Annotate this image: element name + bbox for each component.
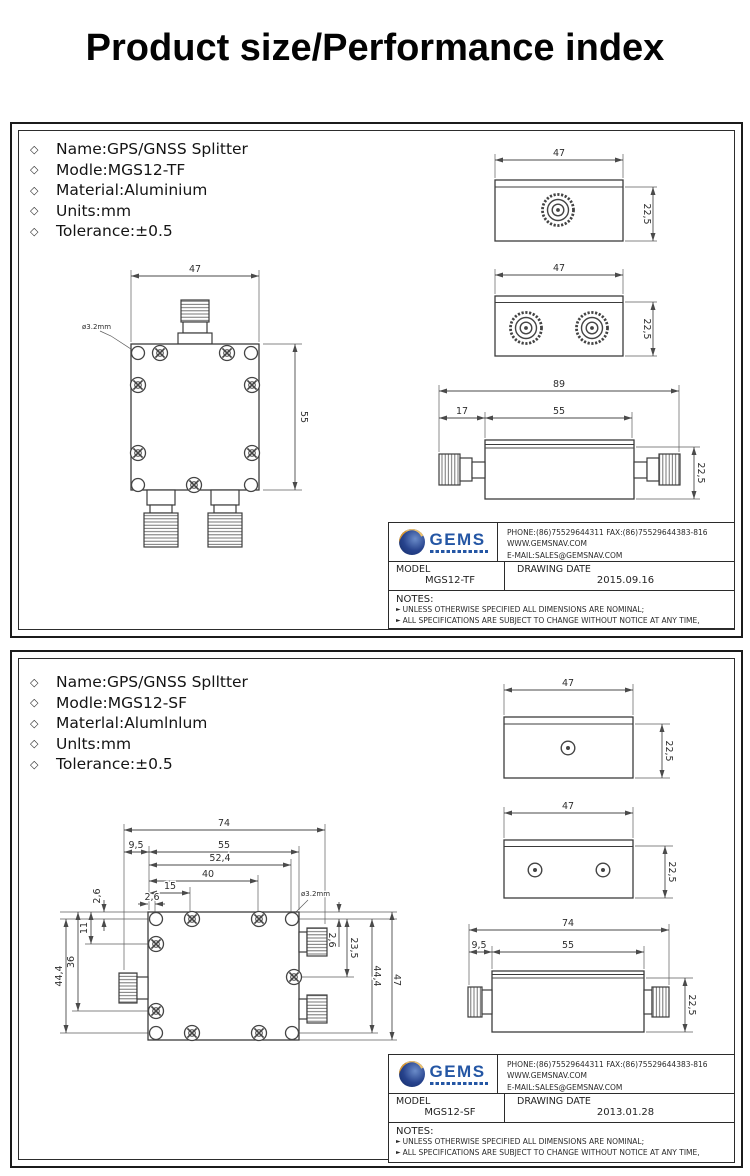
housing-outline — [492, 971, 644, 1032]
website: WWW.GEMSNAV.COM — [507, 538, 734, 549]
front-view: 74 9,5 55 52,4 40 15 2,6 — [54, 818, 402, 1041]
dim-label: 23,5 — [348, 937, 359, 958]
dim-label: 47 — [553, 263, 565, 274]
note-item: ►UNLESS OTHERWISE SPECIFIED ALL DIMENSIO… — [396, 605, 734, 616]
dim-label: 47 — [391, 974, 402, 986]
company-logo: GEMS — [389, 523, 498, 561]
dim-label: 22,5 — [663, 740, 674, 761]
title-block: GEMS PHONE:(86)75529644311 FAX:(86)75529… — [388, 1054, 735, 1163]
email: E-MAIL:SALES@GEMSNAV.COM — [507, 550, 734, 561]
side-view: 89 17 55 22,5 — [439, 379, 706, 499]
dim-label: 9,5 — [128, 840, 143, 851]
sma-connector-right-top — [299, 928, 327, 956]
sma-connector-face — [528, 863, 542, 877]
globe-icon — [399, 1061, 425, 1087]
n-connector-face — [543, 195, 574, 226]
notes-label: NOTES: — [396, 1126, 734, 1137]
housing-outline — [485, 440, 634, 499]
arrow-bullet-icon: ► — [396, 1138, 401, 1146]
dim-label: 17 — [456, 406, 468, 417]
sma-connector-left — [119, 973, 148, 1003]
dim-label: 15 — [164, 881, 176, 892]
dim-label: 22,5 — [641, 318, 652, 339]
dim-label: 47 — [562, 801, 574, 812]
note-item: ►ALL SPECIFICATIONS ARE SUBJECT TO CHANG… — [396, 616, 734, 627]
housing-outline — [131, 344, 259, 490]
title-block: GEMS PHONE:(86)75529644311 FAX:(86)75529… — [388, 522, 735, 629]
top-view-double: 47 22,5 — [495, 263, 657, 356]
dim-label: 55 — [298, 411, 309, 423]
dim-label: 11 — [79, 922, 90, 934]
dim-label: 89 — [553, 379, 565, 390]
model-label: MODEL — [396, 564, 430, 575]
dim-label: 47 — [562, 678, 574, 689]
drawing-sheet-mgs12-tf: ◇Name:GPS/GNSS Splitter ◇Modle:MGS12-TF … — [10, 122, 743, 638]
dim-label: 74 — [218, 818, 230, 829]
email: E-MAIL:SALES@GEMSNAV.COM — [507, 1082, 734, 1093]
dim-label: 52,4 — [209, 853, 230, 864]
arrow-bullet-icon: ► — [396, 617, 401, 625]
sma-connector-right — [644, 987, 669, 1017]
note-item: ►ALL SPECIFICATIONS ARE SUBJECT TO CHANG… — [396, 1148, 734, 1159]
phone-fax: PHONE:(86)75529644311 FAX:(86)7552964438… — [507, 1059, 734, 1070]
date-label: DRAWING DATE — [517, 1096, 591, 1107]
date-label: DRAWING DATE — [517, 564, 591, 575]
top-view-single: 47 22,5 — [495, 148, 657, 241]
n-connector-bottom-left — [144, 490, 178, 547]
dim-label: 22,5 — [686, 994, 697, 1015]
n-connector-top — [178, 300, 212, 344]
model-value: MGS12-TF — [396, 575, 504, 586]
arrow-bullet-icon: ► — [396, 1149, 401, 1157]
dim-label: 47 — [553, 148, 565, 159]
sma-connector-left — [468, 987, 492, 1017]
dim-label: 9,5 — [471, 940, 486, 951]
n-connector-face — [577, 313, 608, 344]
note-item: ►UNLESS OTHERWISE SPECIFIED ALL DIMENSIO… — [396, 1137, 734, 1148]
dim-label: 55 — [553, 406, 565, 417]
housing-outline — [148, 912, 299, 1040]
logo-text: GEMS — [430, 1063, 488, 1080]
dim-label: 22,5 — [666, 861, 677, 882]
top-view-single: 47 22,5 — [504, 678, 674, 778]
dim-label: 55 — [218, 840, 230, 851]
dim-label: 2,6 — [326, 932, 337, 947]
hole-diameter-label: ø3.2mm — [301, 890, 330, 898]
sma-connector-right-bottom — [299, 995, 327, 1023]
sma-connector-face — [596, 863, 610, 877]
globe-icon — [399, 529, 425, 555]
n-connector-right — [634, 454, 680, 485]
arrow-bullet-icon: ► — [396, 606, 401, 614]
notes-label: NOTES: — [396, 594, 734, 605]
date-value: 2013.01.28 — [517, 1107, 734, 1118]
n-connector-left — [439, 454, 485, 485]
side-view: 74 9,5 55 22,5 — [468, 918, 697, 1032]
dim-label: 22,5 — [695, 462, 706, 483]
dim-label: 40 — [202, 869, 214, 880]
phone-fax: PHONE:(86)75529644311 FAX:(86)7552964438… — [507, 527, 734, 538]
top-view-double: 47 22,5 — [504, 801, 677, 898]
drawing-sheet-mgs12-sf: ◇Name:GPS/GNSS Splltter ◇Modle:MGS12-SF … — [10, 650, 743, 1168]
dim-label: 55 — [562, 940, 574, 951]
dim-label: 2,6 — [144, 892, 159, 903]
hole-diameter-label: ø3.2mm — [82, 323, 111, 331]
website: WWW.GEMSNAV.COM — [507, 1070, 734, 1081]
logo-underline — [430, 1082, 488, 1085]
n-connector-face — [511, 313, 542, 344]
dim-label: 2,6 — [92, 888, 103, 903]
dim-label: 36 — [66, 956, 77, 968]
logo-text: GEMS — [430, 531, 488, 548]
n-connector-bottom-right — [208, 490, 242, 547]
logo-underline — [430, 550, 488, 553]
date-value: 2015.09.16 — [517, 575, 734, 586]
sma-connector-face — [561, 741, 575, 755]
model-value: MGS12-SF — [396, 1107, 504, 1118]
dim-label: 74 — [562, 918, 574, 929]
company-logo: GEMS — [389, 1055, 498, 1093]
dim-label: 47 — [189, 264, 201, 275]
front-view: 47 55 ø3.2mm — [82, 264, 309, 547]
model-label: MODEL — [396, 1096, 430, 1107]
page-title: Product size/Performance index — [0, 27, 750, 70]
dim-label: 44,4 — [371, 965, 382, 986]
dim-label: 44,4 — [54, 965, 65, 986]
dim-label: 22,5 — [641, 203, 652, 224]
housing-outline — [504, 840, 633, 898]
